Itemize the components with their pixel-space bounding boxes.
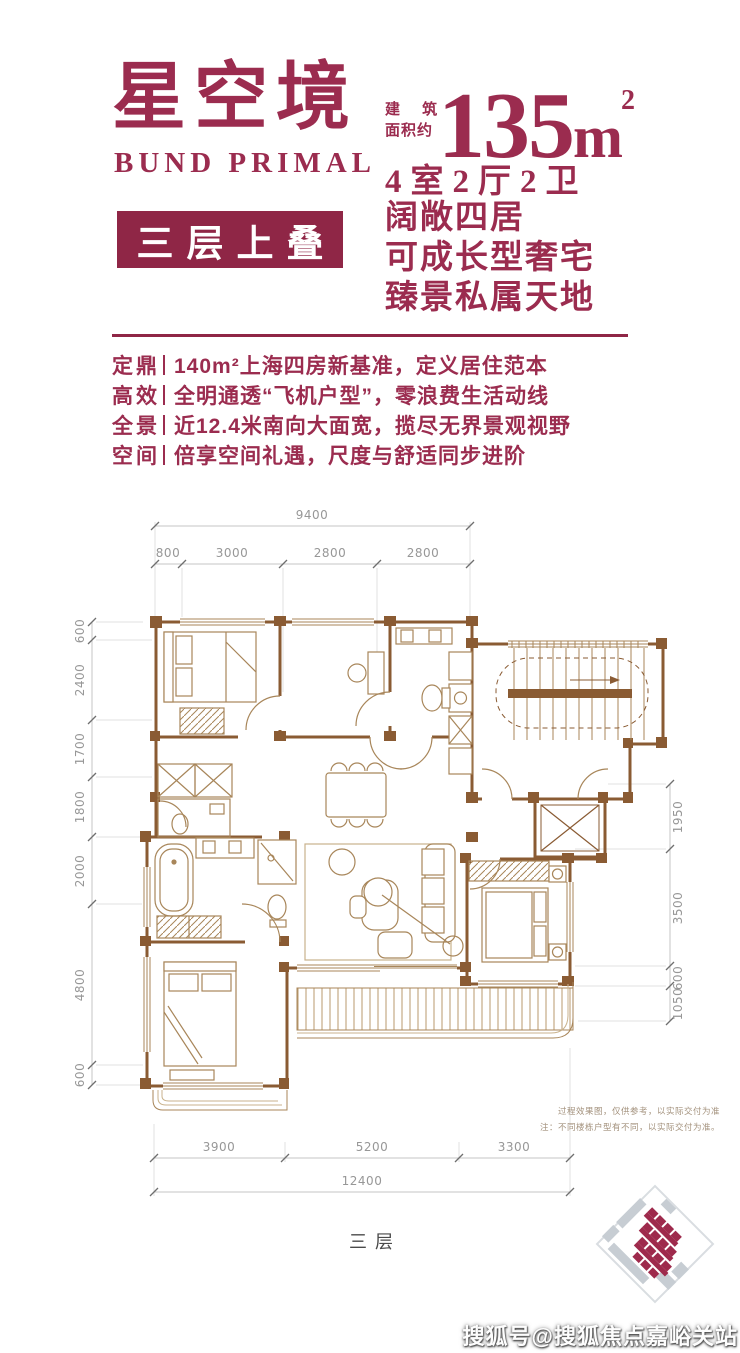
dim-label: 600	[73, 619, 87, 643]
dim-label: 3500	[671, 892, 685, 925]
area-unit-sup: 2	[621, 85, 635, 116]
feature-text: 全明通透“飞机户型”，零浪费生活动线	[174, 380, 549, 410]
slogan: 阔敞四居 可成长型奢宅 臻景私属天地	[385, 198, 595, 318]
dim-label: 2000	[73, 855, 87, 888]
floor-badge: 三层上叠	[117, 211, 343, 268]
dim-label: 800	[156, 546, 180, 560]
feature-row: 空间 倍享空间礼遇，尺度与舒适同步进阶	[112, 440, 571, 470]
dim-label: 600	[671, 966, 685, 990]
feature-list: 定鼎 140m²上海四房新基准，定义居住范本 高效 全明通透“飞机户型”，零浪费…	[112, 350, 571, 470]
feature-row: 定鼎 140m²上海四房新基准，定义居住范本	[112, 350, 571, 380]
slogan-line: 可成长型奢宅	[385, 238, 595, 278]
feature-separator	[163, 415, 165, 435]
door-arcs	[246, 692, 608, 799]
watermark: 搜狐号@搜狐焦点嘉峪关站	[463, 1319, 738, 1351]
feature-text: 倍享空间礼遇，尺度与舒适同步进阶	[174, 440, 526, 470]
project-title-en: BUND PRIMAL	[114, 147, 376, 180]
dim-label: 2400	[73, 664, 87, 697]
feature-row: 全景 近12.4米南向大面宽，揽尽无界景观视野	[112, 410, 571, 440]
dim-label: 1800	[73, 791, 87, 824]
elevator	[535, 799, 605, 857]
living-room	[305, 844, 463, 960]
kitchen	[449, 652, 472, 774]
dim-label: 1950	[671, 801, 685, 834]
dim-label: 1050	[671, 988, 685, 1021]
feature-separator	[163, 355, 165, 375]
feature-label: 高效	[112, 380, 162, 410]
staircase	[496, 648, 648, 740]
bedroom-north	[164, 632, 256, 734]
feature-label: 定鼎	[112, 350, 162, 380]
dim-label: 1700	[73, 733, 87, 766]
area-label-line2: 面积约	[385, 120, 446, 141]
feature-text: 140m²上海四房新基准，定义居住范本	[174, 350, 548, 380]
feature-label: 全景	[112, 410, 162, 440]
master-bedroom	[164, 962, 236, 1080]
dim-label: 600	[73, 1063, 87, 1087]
developer-seal-logo	[595, 1180, 715, 1320]
room-count: 4室2厅2卫	[385, 154, 588, 202]
dim-label: 4800	[73, 969, 87, 1002]
feature-label: 空间	[112, 440, 162, 470]
disclaimer-line: 注：不同楼栋户型有不同，以实际交付为准。	[540, 1122, 720, 1133]
bathroom-north	[396, 628, 452, 711]
master-bathroom	[155, 838, 296, 942]
dim-label: 3900	[203, 1140, 236, 1154]
project-title-cn: 星空境	[112, 58, 358, 138]
floor-plan: 9400 800 3000 2800 2800 600 2400 1700 18…	[30, 492, 730, 1272]
dining-set	[326, 763, 386, 827]
dim-label: 2800	[314, 546, 347, 560]
feature-separator	[163, 385, 165, 405]
area-label: 建 筑 面积约	[385, 99, 446, 141]
area-label-line1: 建 筑	[385, 99, 446, 120]
divider-rule	[112, 334, 628, 337]
study-room	[348, 652, 384, 694]
dim-label: 9400	[296, 508, 329, 522]
feature-separator	[163, 445, 165, 465]
slogan-line: 臻景私属天地	[385, 278, 595, 318]
floor-label: 三层	[320, 1228, 430, 1254]
disclaimer-line: 过程效果图，仅供参考，以实际交付为准	[558, 1106, 720, 1117]
dim-label: 5200	[356, 1140, 389, 1154]
bedroom-east	[469, 859, 566, 962]
floorplan-poster: 星空境 BUND PRIMAL 三层上叠 建 筑 面积约 135m2 4室2厅2…	[0, 0, 740, 1353]
dim-label: 3300	[498, 1140, 531, 1154]
dim-label: 3000	[216, 546, 249, 560]
feature-text: 近12.4米南向大面宽，揽尽无界景观视野	[174, 410, 571, 440]
dim-label: 2800	[407, 546, 440, 560]
slogan-line: 阔敞四居	[385, 198, 595, 238]
dim-label: 12400	[342, 1174, 383, 1188]
hall-storage	[158, 764, 232, 837]
feature-row: 高效 全明通透“飞机户型”，零浪费生活动线	[112, 380, 571, 410]
